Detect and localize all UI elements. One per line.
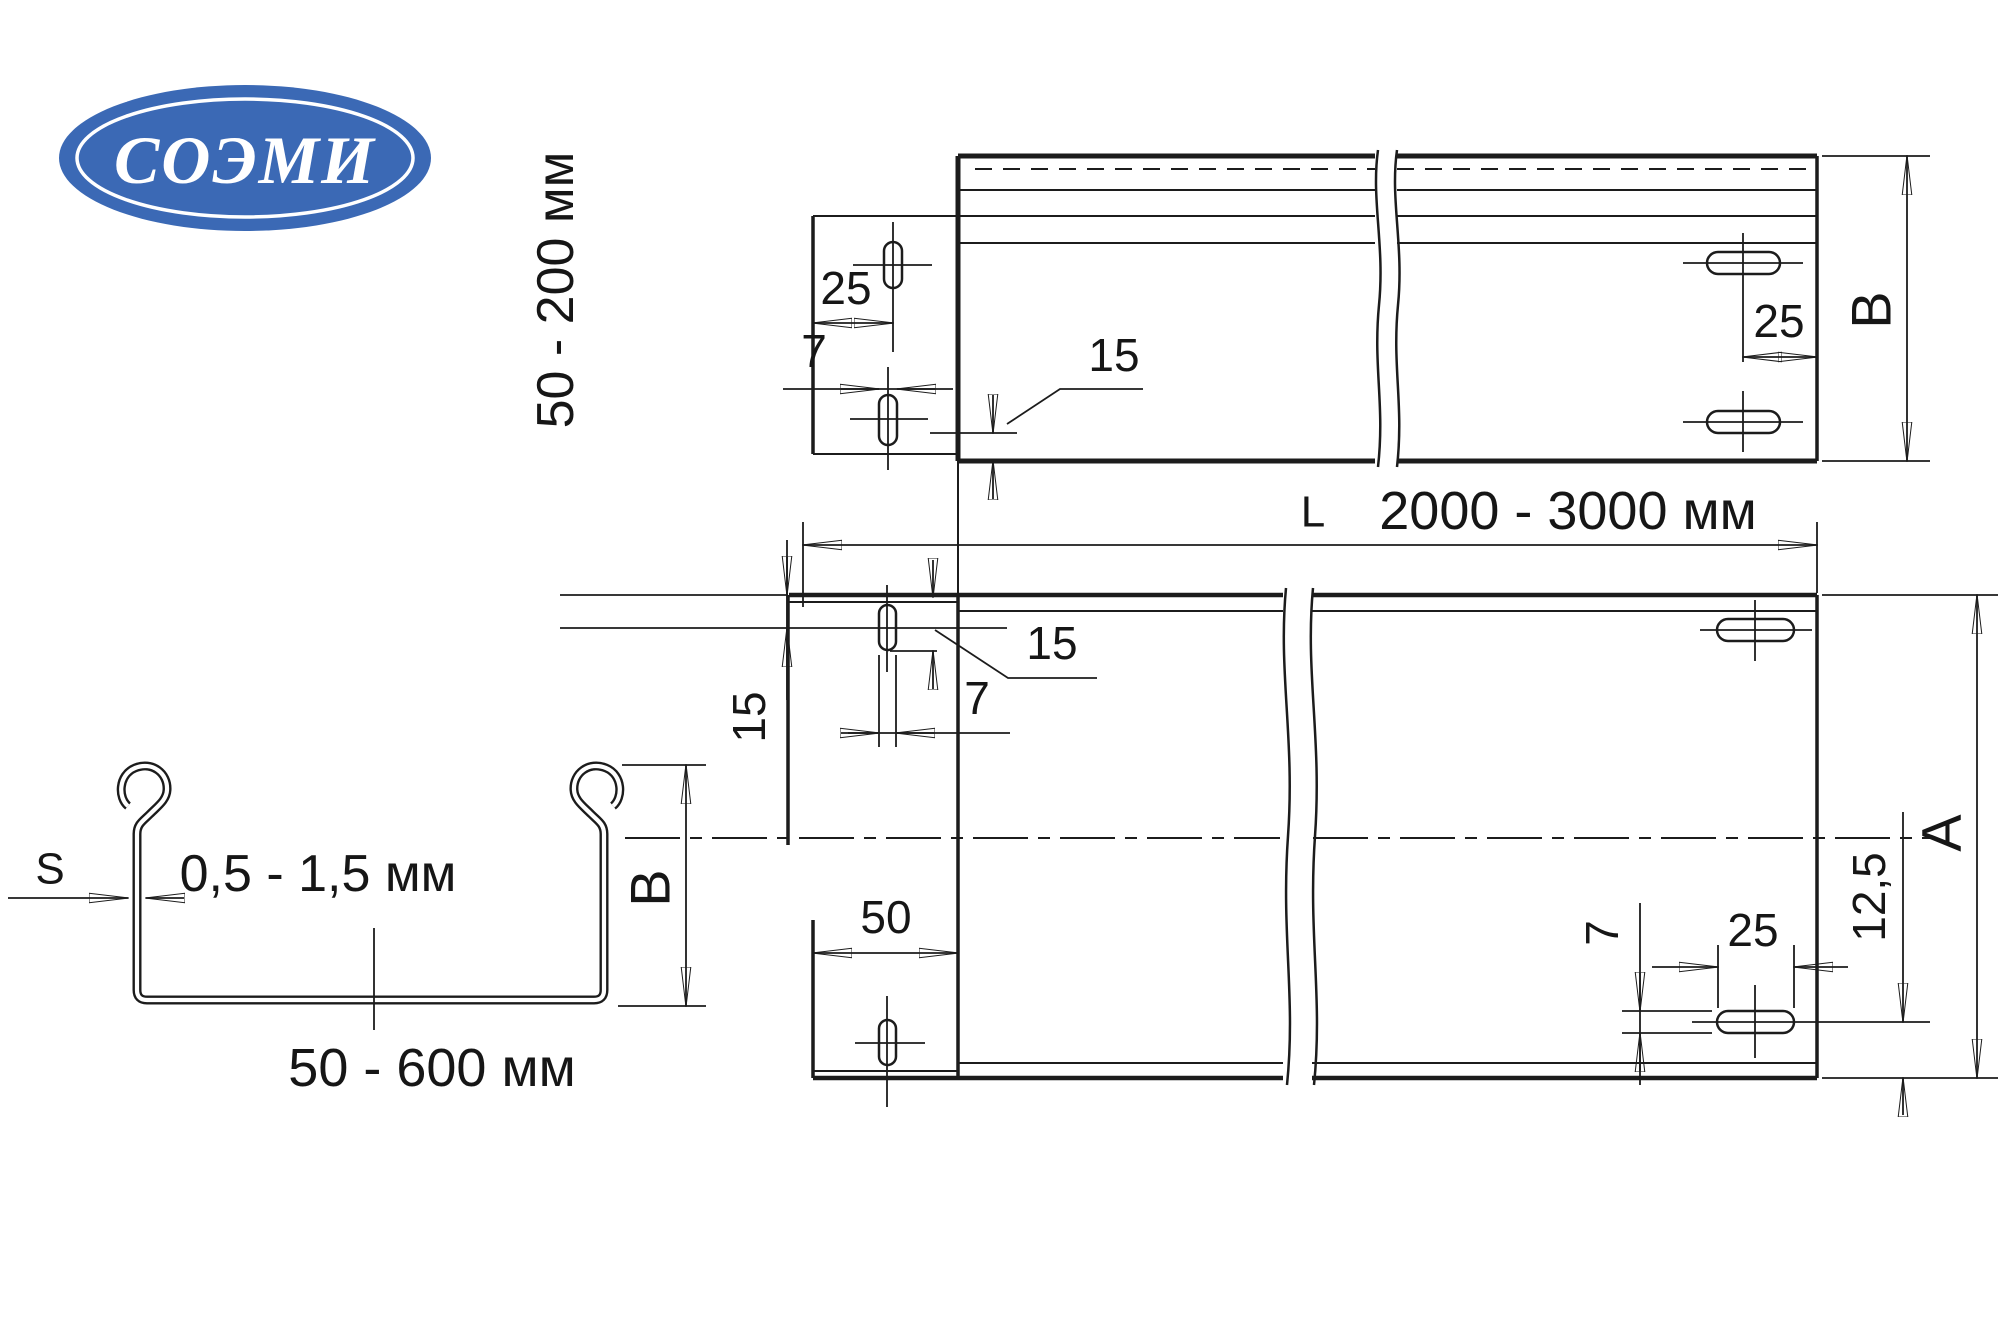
break-line [1311, 588, 1317, 1085]
break-line [1395, 150, 1400, 467]
dim-7-slot-width: 7 [801, 325, 827, 377]
dim-15-row-offset: 15 [723, 691, 775, 742]
drawing-page: СОЭМИ [0, 0, 2000, 1333]
dim-length-value: 2000 - 3000 мм [1379, 481, 1757, 541]
dim-letter-S: S [35, 845, 64, 894]
side-view-height-range-label: 50 - 200 мм [527, 152, 585, 429]
dim-25-end-slot: 25 [1753, 295, 1804, 347]
dim-15-leader-plan: 15 [1026, 617, 1077, 669]
break-line [1376, 150, 1381, 467]
width-range-label: 50 - 600 мм [288, 1038, 575, 1098]
logo: СОЭМИ [59, 85, 431, 231]
dim-7-slot-width-plan: 7 [964, 672, 990, 724]
dim-letter-A: A [1910, 814, 1973, 852]
thickness-range-label: 0,5 - 1,5 мм [180, 845, 457, 903]
dim-15-leader: 15 [1088, 329, 1139, 381]
length-dimension: L 2000 - 3000 мм [803, 481, 1817, 607]
side-view-drawing: 50 - 200 мм 25 7 15 25 B [527, 150, 1930, 499]
plan-view-drawing: 15 15 7 50 7 25 12,5 A [560, 461, 1998, 1115]
break-line [1284, 588, 1290, 1085]
technical-drawing-canvas: СОЭМИ [0, 0, 2000, 1333]
dim-50-tab: 50 [860, 891, 911, 943]
dim-25-tab: 25 [820, 262, 871, 314]
dim-letter-L: L [1301, 488, 1325, 537]
dim-12-5-offset: 12,5 [1843, 852, 1895, 942]
dim-letter-B-section: B [619, 869, 682, 906]
logo-text: СОЭМИ [114, 122, 376, 198]
dim-letter-B: B [1840, 291, 1903, 328]
dim-7-end-slot: 7 [1576, 920, 1628, 946]
dim-25-end-slot-plan: 25 [1727, 904, 1778, 956]
cross-section-drawing: S 0,5 - 1,5 мм B 50 - 600 мм [8, 765, 706, 1098]
